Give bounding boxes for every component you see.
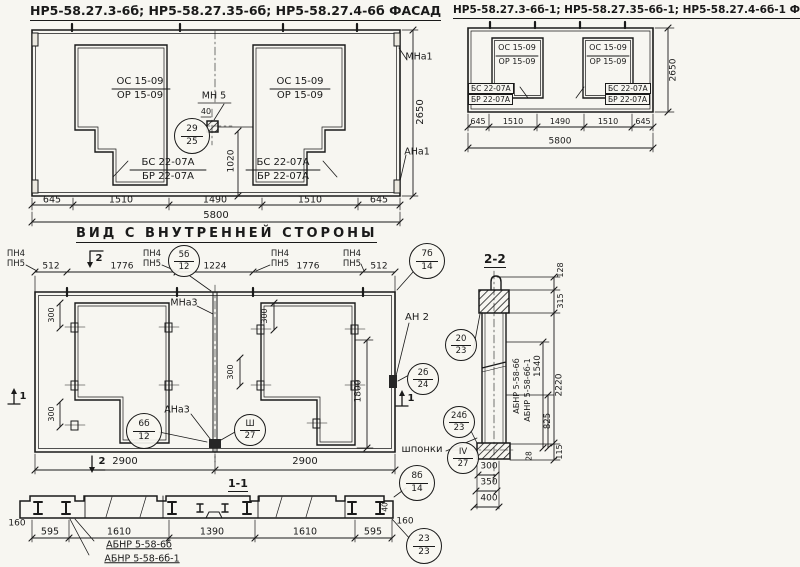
facade-main-title: НР5-58.27.3-6б; НР5-58.27.35-6б; НР5-58.… <box>30 5 441 21</box>
dim-label: 300 <box>48 307 56 322</box>
opening-mark: ОС 15-09 <box>589 44 627 52</box>
opening-mark: ОС 15-09 <box>276 77 323 87</box>
dim-label: 825 <box>544 413 553 429</box>
callout-29-25: 29 25 <box>174 118 210 154</box>
section-marker-2: 2 <box>96 254 103 264</box>
panel-mark-label: АБНР 5-58-6б <box>513 358 521 413</box>
dim-label: 40 <box>201 108 211 116</box>
section-marker-1: 1 <box>408 394 415 404</box>
dim-label: 1510 <box>298 195 322 205</box>
dim-label: 1776 <box>111 263 134 272</box>
section-marker-2: 2 <box>99 457 106 467</box>
dim-label: 595 <box>364 527 382 537</box>
dim-label-total: 5800 <box>203 211 228 221</box>
callout-23-23: 23 23 <box>406 528 442 564</box>
joint-label: АНа3 <box>164 405 190 415</box>
opening-mark: ОР 15-09 <box>277 91 323 101</box>
inner-view-title: ВИД С ВНУТРЕННЕЙ СТОРОНЫ <box>76 227 377 243</box>
opening-mark: ОР 15-09 <box>117 91 163 101</box>
panel-mark-label: АБНР 5-58-6б <box>106 540 172 550</box>
dim-label: 300 <box>227 364 235 379</box>
anchor-label: МНа1 <box>405 52 432 62</box>
dim-label: 28 <box>525 451 533 461</box>
dim-label: 40 <box>381 502 389 512</box>
niche-mark: БС 22-07А <box>468 83 514 94</box>
panel-mark-label: АБНР 5-58-6б-1 <box>104 554 179 564</box>
section-2-2-title: 2-2 <box>484 253 506 268</box>
dim-label: 595 <box>41 527 59 537</box>
dim-label: 1510 <box>503 118 523 126</box>
dim-label: 1800 <box>355 380 364 403</box>
dim-label: 1540 <box>534 355 543 377</box>
dim-label: 160 <box>396 518 413 527</box>
dim-label: 1224 <box>204 263 227 272</box>
dim-label: 2650 <box>670 59 679 82</box>
callout-7b-14: 7б 14 <box>409 243 445 279</box>
opening-mark: ОР 15-09 <box>590 58 627 66</box>
dim-label: 645 <box>370 195 388 205</box>
callout-5b-12: 5б 12 <box>168 245 200 277</box>
niche-mark: БР 22-07А <box>605 94 650 105</box>
dim-label: 1490 <box>550 118 570 126</box>
dim-label: 645 <box>470 118 485 126</box>
embed-mark-pn: ПН4ПН5 <box>271 249 289 269</box>
callout-iv-27: IV 27 <box>447 442 479 474</box>
dim-label: 2900 <box>112 457 137 467</box>
callout-sh-27: Ш 27 <box>234 414 266 446</box>
dim-label: 315 <box>557 293 565 308</box>
opening-mark: ОС 15-09 <box>116 77 163 87</box>
section-marker-1: 1 <box>20 392 27 402</box>
keys-label: шпонки <box>402 445 443 455</box>
callout-6b-12: 6б 12 <box>126 413 162 449</box>
dim-label: 1510 <box>109 195 133 205</box>
dim-label: 2650 <box>416 99 426 124</box>
callout-24b-23: 24б 23 <box>443 406 475 438</box>
dim-label: 160 <box>8 520 25 529</box>
dim-label: 1610 <box>107 527 131 537</box>
dim-label: 1390 <box>200 527 224 537</box>
callout-20-23: 20 23 <box>445 329 477 361</box>
dim-label-total: 5800 <box>549 138 572 147</box>
dim-label: 1776 <box>297 263 320 272</box>
dim-label: 1610 <box>293 527 317 537</box>
dim-label: 128 <box>557 262 565 277</box>
embed-mark-pn: ПН4ПН5 <box>343 249 361 269</box>
dim-label: 1490 <box>203 195 227 205</box>
drawing-sheet: НР5-58.27.3-6б; НР5-58.27.35-6б; НР5-58.… <box>0 0 800 567</box>
facade-alt-title: НР5-58.27.3-6б-1; НР5-58.27.35-6б-1; НР5… <box>453 5 800 19</box>
dim-label: 300 <box>480 463 497 472</box>
dim-label: 1510 <box>598 118 618 126</box>
dim-label: 1020 <box>228 150 237 173</box>
embed-mark-pn: ПН4ПН5 <box>7 249 25 269</box>
niche-mark: БС 22-07А <box>257 158 310 168</box>
niche-mark: БР 22-07А <box>257 172 309 182</box>
dim-label: 400 <box>480 495 497 504</box>
dim-label: 512 <box>370 263 387 272</box>
embed-mark-pn: ПН4ПН5 <box>143 249 161 269</box>
opening-mark: ОР 15-09 <box>499 58 536 66</box>
callout-8b-14: 8б 14 <box>399 465 435 501</box>
niche-mark: БР 22-07А <box>468 94 513 105</box>
niche-mark: БР 22-07А <box>142 172 194 182</box>
panel-mark-label: АБНР 5-58-6б-1 <box>524 358 532 421</box>
opening-mark: ОС 15-09 <box>498 44 536 52</box>
callout-2b-24: 2б 24 <box>407 363 439 395</box>
section-1-1-title: 1-1 <box>228 478 248 492</box>
dim-label: 2220 <box>556 374 565 397</box>
dim-label: 2900 <box>292 457 317 467</box>
dim-label: 115 <box>556 444 564 459</box>
mount-loop-label: МН 5 <box>202 91 226 101</box>
dim-label: 300 <box>261 308 269 323</box>
dim-label: 350 <box>480 479 497 488</box>
dim-label: 300 <box>48 406 56 421</box>
dim-label: 645 <box>43 195 61 205</box>
joint-label: МНа3 <box>170 298 197 308</box>
anchor-label: АН 2 <box>405 313 429 323</box>
niche-mark: БС 22-07А <box>605 83 651 94</box>
dim-label: 512 <box>42 263 59 272</box>
dim-label: 645 <box>635 118 650 126</box>
anchor-label: АНа1 <box>404 147 430 157</box>
niche-mark: БС 22-07А <box>142 158 195 168</box>
